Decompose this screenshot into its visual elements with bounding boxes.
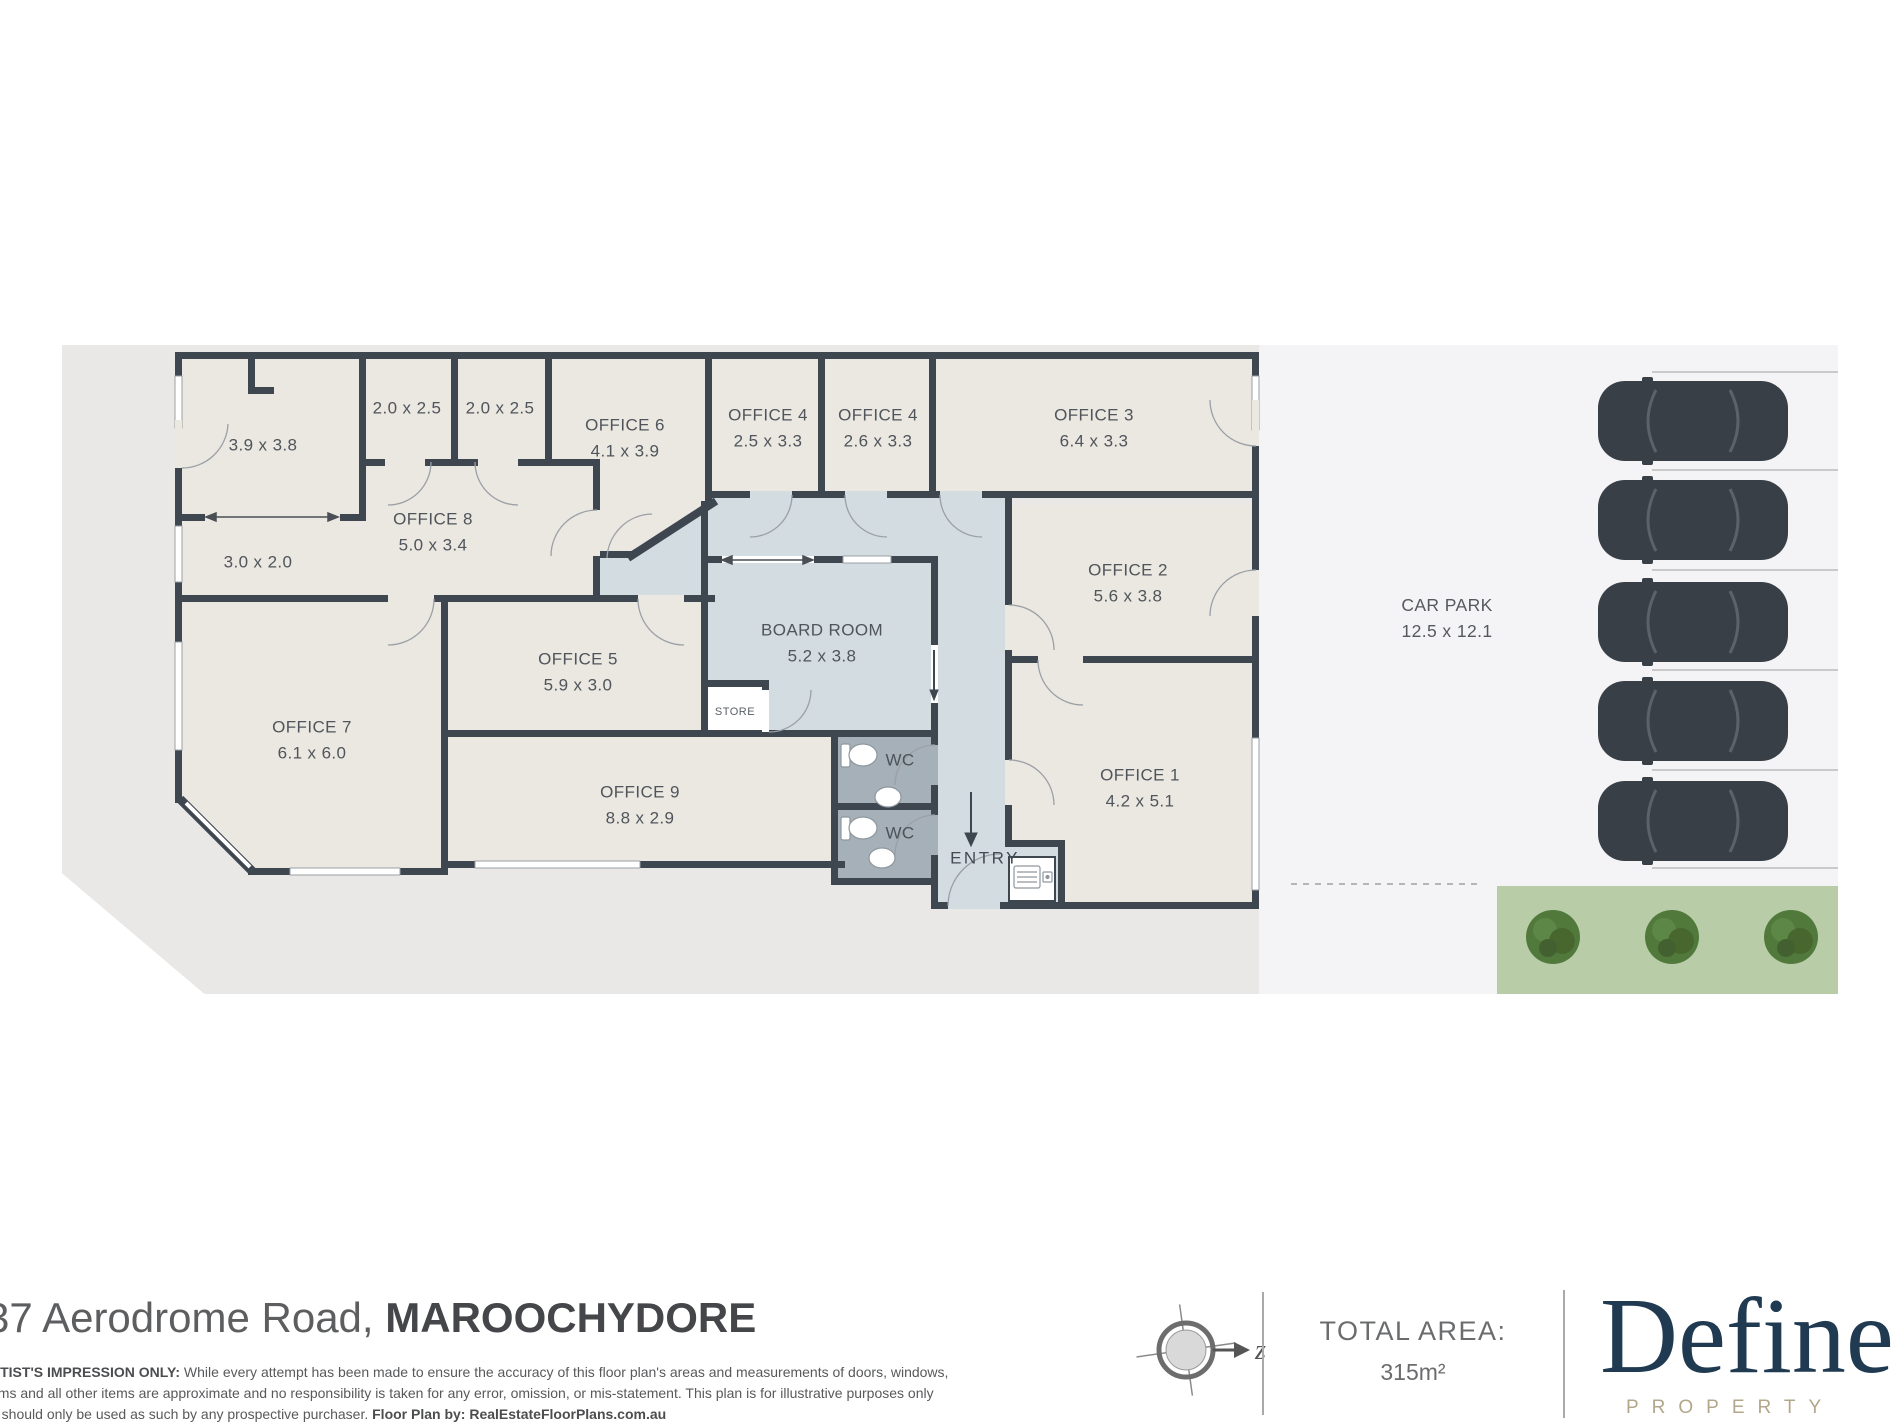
label-office-4a: OFFICE 42.5 x 3.3 bbox=[728, 403, 808, 454]
label-office-1: OFFICE 14.2 x 5.1 bbox=[1100, 763, 1180, 814]
floorplan-credit: Floor Plan by: RealEstateFloorPlans.com.… bbox=[372, 1406, 666, 1422]
toilet-icon bbox=[841, 744, 877, 840]
tree-icon bbox=[1526, 910, 1580, 964]
label-room-3938: 3.9 x 3.8 bbox=[229, 432, 298, 458]
label-wc1: WC bbox=[885, 747, 914, 773]
address-text: 37 Aerodrome Road, bbox=[0, 1294, 385, 1341]
label-office-4b: OFFICE 42.6 x 3.3 bbox=[838, 403, 918, 454]
label-entry: ENTRY bbox=[950, 845, 1020, 871]
car-icon bbox=[1598, 476, 1788, 564]
floorplan-page: 3.9 x 3.8 2.0 x 2.5 2.0 x 2.5 OFFICE 64.… bbox=[0, 0, 1900, 1425]
label-store: STORE bbox=[715, 704, 755, 721]
suburb-text: MAROOCHYDORE bbox=[385, 1294, 756, 1341]
car-icon bbox=[1598, 578, 1788, 666]
label-office-2: OFFICE 25.6 x 3.8 bbox=[1088, 558, 1168, 609]
footer-divider bbox=[1563, 1290, 1565, 1418]
brand-name: Define bbox=[1600, 1283, 1894, 1391]
footer-divider bbox=[1262, 1292, 1264, 1415]
page-title: 37 Aerodrome Road, MAROOCHYDORE bbox=[0, 1294, 756, 1342]
svg-text:z: z bbox=[1254, 1335, 1266, 1366]
disclaimer-lead: RTIST'S IMPRESSION ONLY: bbox=[0, 1364, 180, 1380]
tree-icon bbox=[1645, 910, 1699, 964]
door-gap bbox=[175, 400, 1259, 909]
total-area-label: TOTAL AREA: bbox=[1292, 1316, 1534, 1347]
car-icon bbox=[1598, 777, 1788, 865]
tree-icon bbox=[1764, 910, 1818, 964]
label-room-2025b: 2.0 x 2.5 bbox=[466, 395, 535, 421]
label-room-2025a: 2.0 x 2.5 bbox=[373, 395, 442, 421]
label-boardroom: BOARD ROOM5.2 x 3.8 bbox=[761, 618, 883, 669]
label-office-9: OFFICE 98.8 x 2.9 bbox=[600, 780, 680, 831]
label-office-5: OFFICE 55.9 x 3.0 bbox=[538, 647, 618, 698]
car-icon bbox=[1598, 677, 1788, 765]
car-icon bbox=[1598, 377, 1788, 465]
brand-subtitle: PROPERTY bbox=[1626, 1397, 1894, 1419]
total-area: TOTAL AREA: 315m² bbox=[1292, 1316, 1534, 1386]
label-room-3020: 3.0 x 2.0 bbox=[224, 549, 293, 575]
door-arc bbox=[182, 400, 1256, 906]
brand-logo: Define PROPERTY bbox=[1600, 1283, 1894, 1419]
compass-icon: z bbox=[1128, 1302, 1278, 1402]
label-office-8: OFFICE 85.0 x 3.4 bbox=[393, 507, 473, 558]
label-office-7: OFFICE 76.1 x 6.0 bbox=[272, 715, 352, 766]
disclaimer: RTIST'S IMPRESSION ONLY: While every att… bbox=[0, 1362, 1080, 1425]
total-area-value: 315m² bbox=[1292, 1359, 1534, 1386]
label-office-3: OFFICE 36.4 x 3.3 bbox=[1054, 403, 1134, 454]
label-carpark: CAR PARK12.5 x 12.1 bbox=[1401, 592, 1492, 645]
label-wc2: WC bbox=[885, 820, 914, 846]
label-office-6: OFFICE 64.1 x 3.9 bbox=[585, 413, 665, 464]
